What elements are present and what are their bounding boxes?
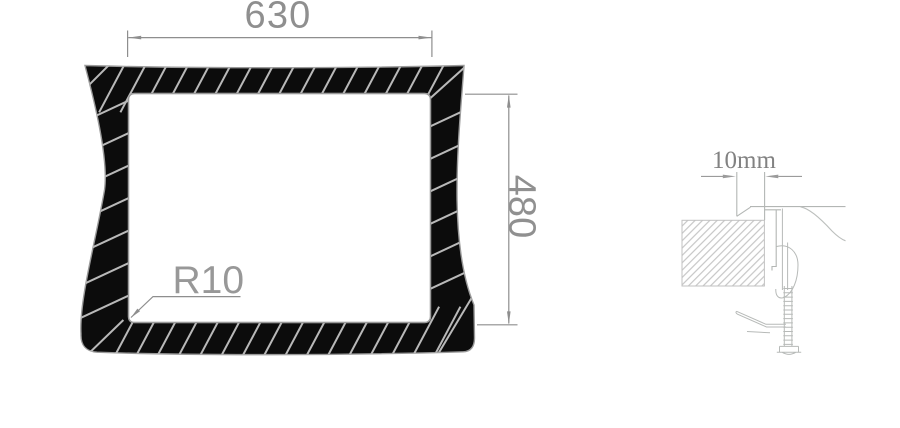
svg-text:630: 630 xyxy=(244,0,311,36)
svg-text:10mm: 10mm xyxy=(712,147,776,174)
svg-text:R10: R10 xyxy=(173,259,245,302)
svg-text:480: 480 xyxy=(501,175,543,238)
